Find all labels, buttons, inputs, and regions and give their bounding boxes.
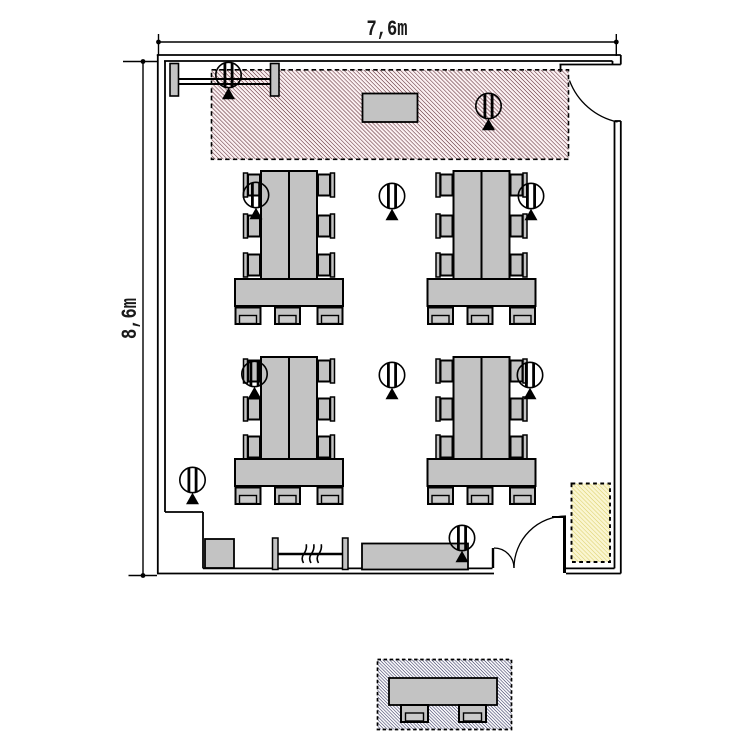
svg-text:7,6m: 7,6m [367, 17, 408, 42]
svg-text:8,6m: 8,6m [118, 298, 143, 339]
